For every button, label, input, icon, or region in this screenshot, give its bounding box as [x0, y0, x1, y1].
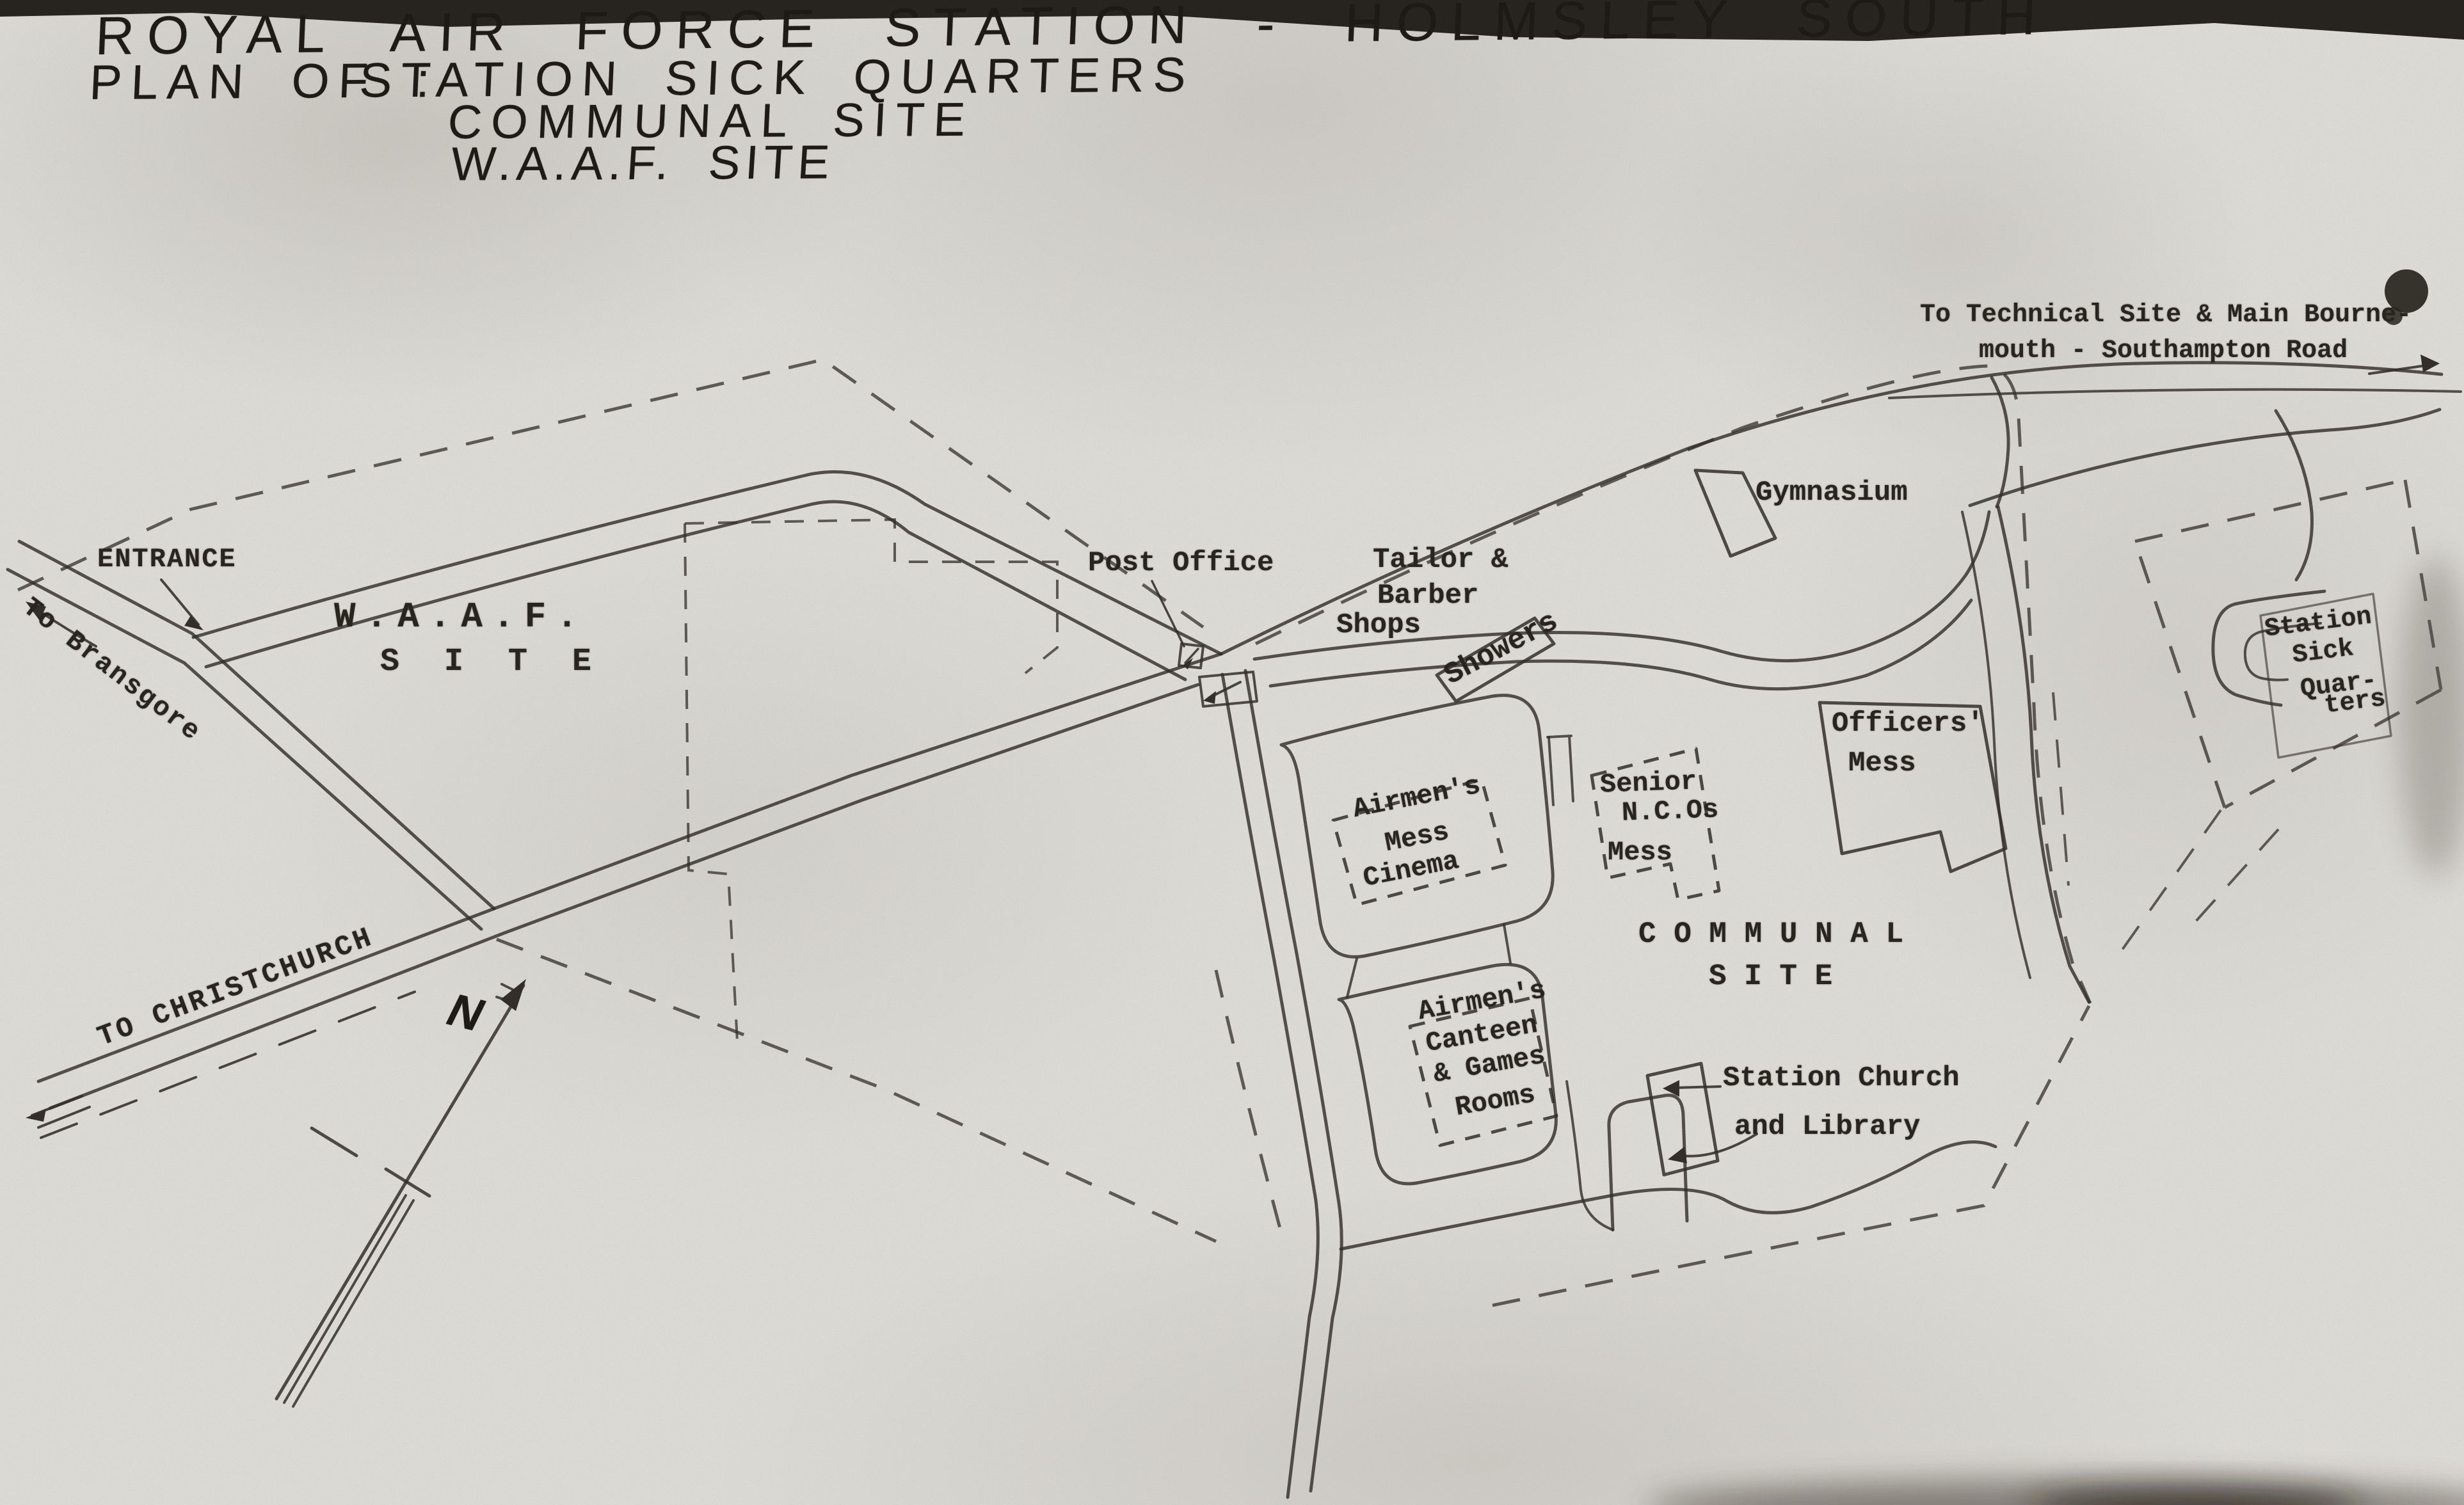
map-canvas: ROYAL AIR FORCE STATION - HOLMSLEY SOUTH…	[0, 0, 2464, 1505]
label-communal-site-line1: C O M M U N A L	[1638, 918, 1903, 951]
label-gymnasium: Gymnasium	[1756, 477, 1908, 509]
label-church-line1: Station Church	[1723, 1062, 1960, 1094]
label-tailor-line3: Shops	[1336, 609, 1421, 641]
label-to-technical-line2: mouth - Southampton Road	[1979, 337, 2348, 365]
label-waaf-site-line2: S I T E	[380, 644, 604, 680]
label-airmens-mess-line1: Airmen's	[1350, 770, 1483, 825]
label-waaf-site-line1: W.A.A.F.	[334, 596, 588, 637]
label-tailor-line2: Barber	[1377, 580, 1478, 612]
label-officers-mess-line1: Officers'	[1832, 708, 1984, 740]
label-entrance: ENTRANCE	[97, 544, 237, 575]
title-subject-waaf: W.A.A.F. SITE	[449, 134, 836, 191]
label-sick-quarters: Station Sick Quar- ters	[2263, 602, 2387, 728]
map-labels: ROYAL AIR FORCE STATION - HOLMSLEY SOUTH…	[0, 0, 2464, 1505]
label-to-technical-line1: To Technical Site & Main Bourne-	[1920, 301, 2412, 330]
label-to-bransgore: To Bransgore	[17, 592, 207, 748]
label-canteen-line4: Rooms	[1453, 1079, 1537, 1123]
label-senior-ncos-line2: N.C.Os	[1621, 794, 1719, 828]
north-letter: N	[438, 985, 493, 1041]
label-communal-site-line2: S I T E	[1709, 960, 1832, 993]
label-officers-mess-line2: Mess	[1848, 747, 1916, 779]
label-showers: Showers	[1439, 605, 1564, 692]
label-post-office: Post Office	[1088, 547, 1274, 579]
label-church-line2: and Library	[1734, 1111, 1920, 1143]
label-to-christchurch: TO CHRISTCHURCH	[93, 921, 378, 1054]
label-senior-ncos-line3: Mess	[1608, 837, 1672, 868]
label-tailor-line1: Tailor &	[1373, 544, 1508, 576]
